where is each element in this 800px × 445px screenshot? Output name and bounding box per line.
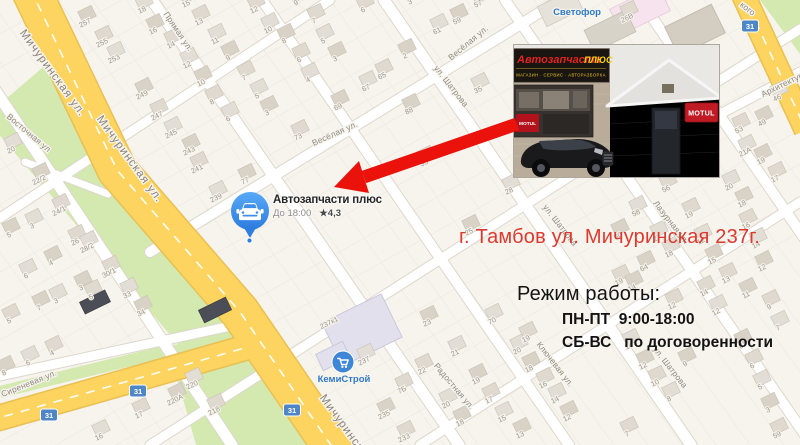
place-name[interactable]: Автозапчасти плюс: [273, 194, 382, 207]
ad-banner: MOTUL: [513, 85, 593, 137]
svg-text:31: 31: [45, 411, 53, 420]
schedule-weekdays: ПН-ПТ 9:00-18:00: [562, 311, 773, 329]
svg-text:31: 31: [134, 387, 142, 396]
shop-sign: Автозапчасти ПЛЮС МАГАЗИН · СЕРВИС · АВТ…: [514, 49, 613, 82]
storefront-photo: Автозапчасти ПЛЮС МАГАЗИН · СЕРВИС · АВТ…: [513, 44, 720, 178]
schedule-block: Режим работы: ПН-ПТ 9:00-18:00 СБ-ВС по …: [517, 283, 773, 352]
poi-svetofor[interactable]: Светофор: [553, 7, 601, 18]
place-label[interactable]: Автозапчасти плюс До 18:00 ★4,3: [273, 194, 382, 219]
svg-text:MOTUL: MOTUL: [519, 121, 536, 127]
place-rating: ★4,3: [319, 209, 341, 219]
schedule-title: Режим работы:: [517, 283, 773, 306]
svg-text:MOTUL: MOTUL: [688, 111, 715, 118]
schedule-weekend: СБ-ВС по договоренности: [562, 334, 773, 352]
attic-window: [662, 84, 674, 93]
address-text: г. Тамбов ул. Мичуринская 237г.: [459, 226, 760, 249]
svg-text:КемиСтрой: КемиСтрой: [318, 374, 371, 385]
place-hours: До 18:00: [273, 209, 311, 219]
sign-text-yellow: ПЛЮС: [584, 55, 613, 65]
svg-text:31: 31: [746, 22, 754, 31]
road-number-badge: 31: [41, 409, 58, 421]
road-number-badge: 31: [130, 385, 147, 397]
sign-subtext: МАГАЗИН · СЕРВИС · АВТОРАЗБОРКА: [516, 73, 606, 78]
road-number-badge: 31: [742, 20, 759, 32]
map-canvas[interactable]: 2022/224/1352628/2430/163537533344681722…: [0, 0, 800, 445]
road-number-badge: 31: [284, 404, 301, 416]
svg-text:31: 31: [288, 406, 296, 415]
marker-dot: [247, 238, 252, 243]
